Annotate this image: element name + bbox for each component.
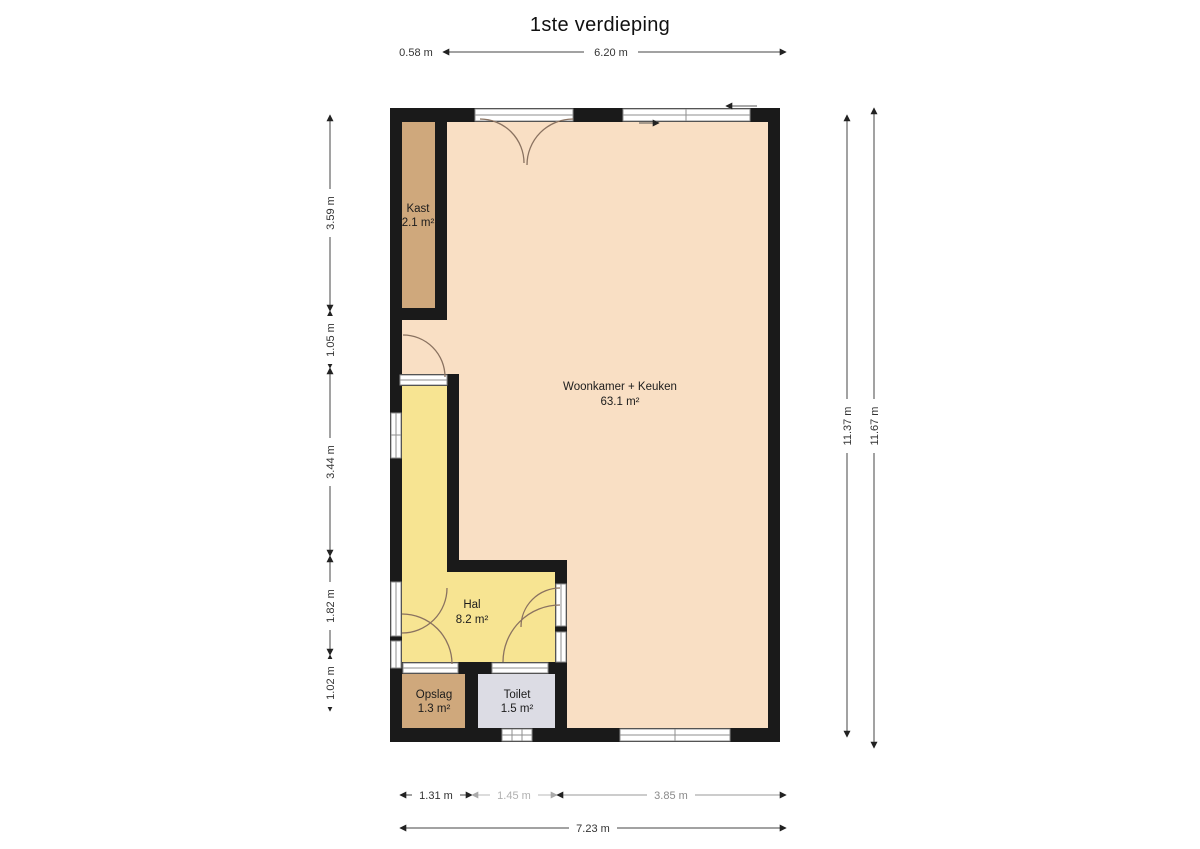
dimension-left: 3.59 m 1.05 m 3.44 m 1.82 m 1.02 m	[323, 115, 337, 711]
dimension-right: 11.37 m 11.67 m	[840, 108, 881, 748]
dim-top-small: 0.58 m	[399, 47, 433, 59]
top-window	[623, 109, 750, 121]
toilet-area: 1.5 m²	[501, 703, 534, 715]
kast-area: 2.1 m²	[402, 217, 435, 229]
wall-kast-right	[435, 108, 447, 320]
wall-toilet-right	[555, 662, 567, 742]
kast-name: Kast	[406, 203, 430, 215]
left-window-2	[391, 582, 401, 636]
wall-right	[768, 108, 780, 742]
dim-right-outer: 11.67 m	[869, 407, 881, 446]
wall-opslag-toilet-divider	[465, 662, 478, 742]
floorplan-page: 1ste verdieping	[0, 0, 1200, 849]
bottom-window	[620, 729, 730, 741]
woonkamer-name: Woonkamer + Keuken	[563, 381, 677, 393]
dim-right-inner: 11.37 m	[842, 407, 854, 446]
french-door-opening	[475, 109, 573, 121]
dim-top-main: 6.20 m	[594, 47, 628, 59]
opslag-area: 1.3 m²	[418, 703, 451, 715]
dim-left-1: 3.59 m	[325, 196, 337, 230]
left-window-3	[391, 641, 401, 668]
toilet-door-opening	[492, 663, 548, 673]
dim-left-5: 1.02 m	[325, 666, 337, 700]
dim-bottom-total: 7.23 m	[576, 823, 610, 835]
dim-left-3: 3.44 m	[325, 445, 337, 479]
dim-left-2: 1.05 m	[325, 323, 337, 357]
hal-name: Hal	[463, 599, 480, 611]
left-window-1	[391, 413, 401, 458]
hal-top-door-opening	[400, 375, 447, 385]
opslag-door-opening	[403, 663, 458, 673]
wall-kast-bottom	[390, 308, 447, 320]
room-kast-floor	[402, 122, 435, 308]
floorplan-drawing: Kast 2.1 m² Woonkamer + Keuken 63.1 m² H…	[0, 0, 1200, 849]
woonkamer-area: 63.1 m²	[601, 396, 640, 408]
toilet-name: Toilet	[504, 689, 532, 701]
opslag-name: Opslag	[416, 689, 452, 701]
dimension-bottom: 1.31 m 1.45 m 3.85 m 7.23 m	[400, 788, 786, 835]
room-opslag-floor	[402, 674, 465, 728]
room-toilet-floor	[478, 674, 555, 728]
dim-bottom-3: 3.85 m	[654, 790, 688, 802]
dimension-top: 6.20 m 0.58 m	[399, 44, 786, 59]
dim-bottom-2: 1.45 m	[497, 790, 531, 802]
hal-area: 8.2 m²	[456, 614, 489, 626]
dim-bottom-1: 1.31 m	[419, 790, 453, 802]
wall-hal-narrow-right	[447, 374, 459, 572]
hal-right-bottom-door-opening	[556, 632, 566, 662]
wall-hal-step	[447, 560, 567, 572]
toilet-window	[502, 729, 532, 741]
dim-left-4: 1.82 m	[325, 589, 337, 623]
